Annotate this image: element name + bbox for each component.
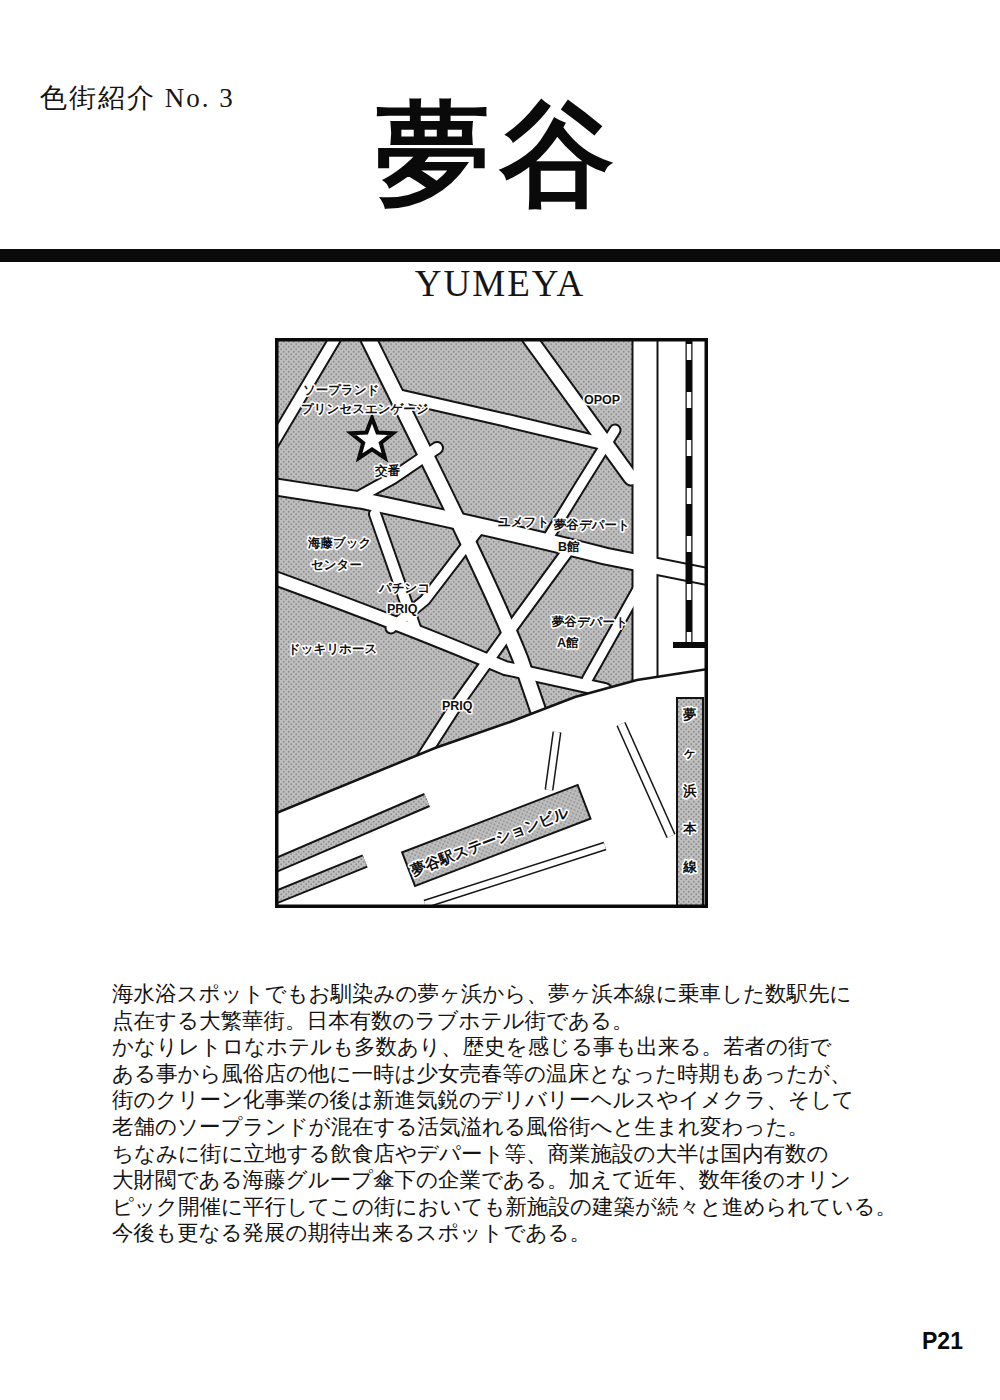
body-line: 今後も更なる発展の期待出来るスポットである。 xyxy=(112,1220,922,1247)
map-label-soapland-2: プリンセスエンゲージ xyxy=(301,402,429,416)
map-label-koban: 交番 xyxy=(374,463,401,478)
body-line: ある事から風俗店の他に一時は少女売春等の温床となった時期もあったが、 xyxy=(112,1061,922,1088)
page-subtitle: YUMEYA xyxy=(0,262,1000,305)
map-label-depart-a-2: A館 xyxy=(557,636,579,650)
body-text: 海水浴スポットでもお馴染みの夢ヶ浜から、夢ヶ浜本線に乗車した数駅先に 点在する大… xyxy=(112,981,922,1247)
map-label-kaito-book-1: 海藤ブック xyxy=(307,536,371,550)
map-label-soapland-1: ソープランド xyxy=(303,383,379,397)
map-label-kaito-book-2: センター xyxy=(311,558,362,572)
city-map: 夢谷駅ステーションビル 夢ヶ浜本線 ソープランド プリンセスエンゲージ 交番 O… xyxy=(275,338,708,908)
body-line: ちなみに街に立地する飲食店やデパート等、商業施設の大半は国内有数の xyxy=(112,1141,922,1168)
map-label-depart-a-1: 夢谷デパート xyxy=(551,615,628,629)
body-line: 街のクリーン化事業の後は新進気鋭のデリバリーヘルスやイメクラ、そして xyxy=(112,1087,922,1114)
body-line: 点在する大繁華街。日本有数のラブホテル街である。 xyxy=(112,1008,922,1035)
rail-corridor xyxy=(654,338,708,678)
page-title: 夢谷 xyxy=(0,96,1000,216)
city-map-svg: 夢谷駅ステーションビル 夢ヶ浜本線 ソープランド プリンセスエンゲージ 交番 O… xyxy=(275,338,708,908)
map-label-opop: OPOP xyxy=(584,393,620,407)
body-line: 大財閥である海藤グループ傘下の企業である。加えて近年、数年後のオリン xyxy=(112,1167,922,1194)
body-line: ピック開催に平行してこの街においても新施設の建築が続々と進められている。 xyxy=(112,1194,922,1221)
rail-name-bar: 夢ヶ浜本線 xyxy=(677,698,703,908)
map-label-priq-south: PRIQ xyxy=(442,699,473,713)
body-line: 海水浴スポットでもお馴染みの夢ヶ浜から、夢ヶ浜本線に乗車した数駅先に xyxy=(112,981,922,1008)
map-label-pachinko-2: PRIQ xyxy=(387,602,418,616)
map-label-yumefuto: ユメフト xyxy=(498,515,549,529)
page-number: P21 xyxy=(922,1328,963,1355)
divider-rule xyxy=(0,249,1000,262)
map-label-pachinko-1: パチンコ xyxy=(378,581,430,595)
map-label-dokkiri-horse: ドッキリホース xyxy=(288,642,377,656)
map-label-depart-b-2: B館 xyxy=(558,540,580,554)
body-line: かなりレトロなホテルも多数あり、歴史を感じる事も出来る。若者の街で xyxy=(112,1034,922,1061)
page: 色街紹介 No. 3 夢谷 YUMEYA xyxy=(0,0,1000,1400)
map-label-depart-b-1: 夢谷デパート xyxy=(553,518,630,532)
body-line: 老舗のソープランドが混在する活気溢れる風俗街へと生まれ変わった。 xyxy=(112,1114,922,1141)
